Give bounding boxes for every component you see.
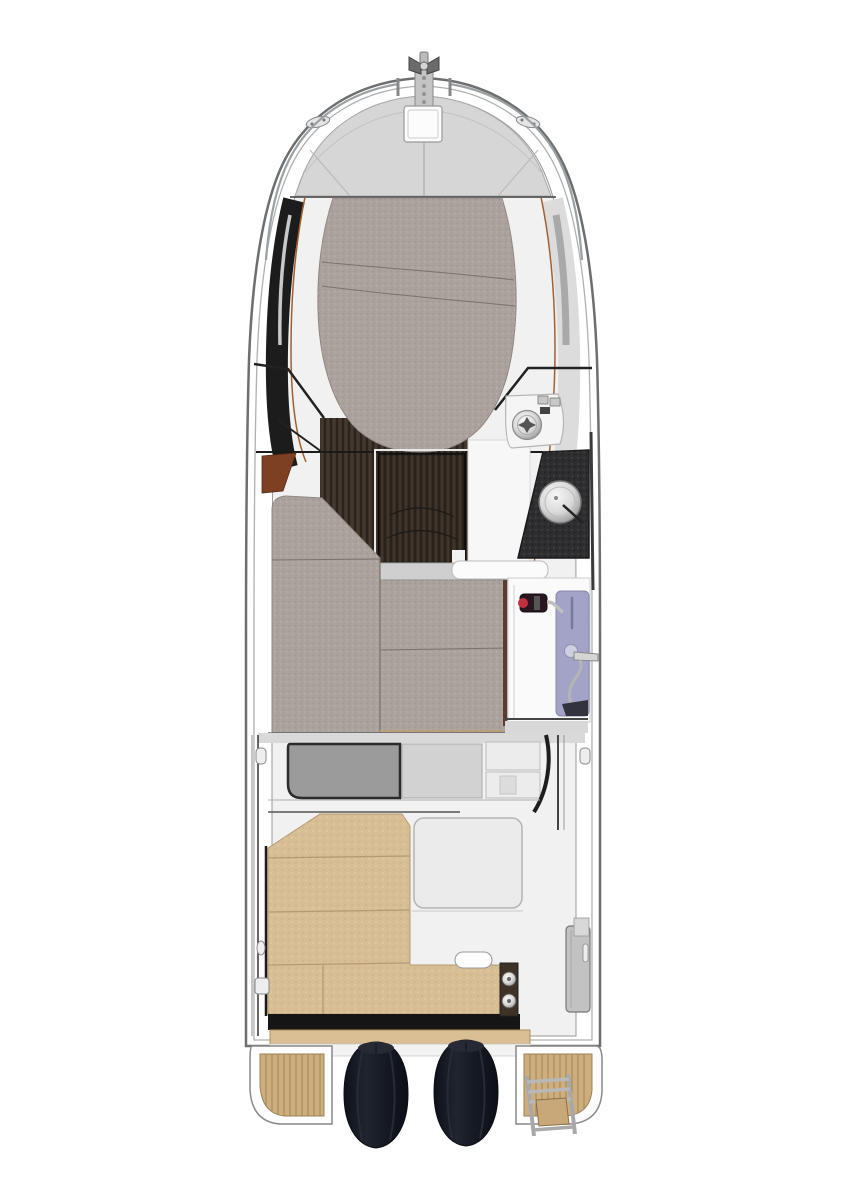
gunwale-fitting-left-3 <box>255 978 269 994</box>
throttle-lever <box>540 407 550 414</box>
transom-teak-step <box>270 1030 530 1044</box>
head-compartment <box>503 578 598 733</box>
head-trim-left <box>503 580 507 726</box>
anchor-locker-hatch <box>404 106 442 142</box>
boat-deck-plan <box>0 0 848 1200</box>
galley-floor <box>468 440 530 580</box>
gunwale-fitting-left-1 <box>256 748 266 764</box>
gunwale-fitting-left-2 <box>257 941 265 955</box>
entry-step-1 <box>486 742 540 770</box>
cockpit-floor-hatch <box>414 818 522 908</box>
ladder-rung-bottom <box>533 1127 573 1130</box>
white-shelf <box>452 561 548 579</box>
pump-band <box>534 596 540 610</box>
chain-link <box>422 84 426 88</box>
latch-pin <box>507 977 511 981</box>
instrument-panel-2 <box>550 398 560 406</box>
pump-red-cap <box>518 598 528 608</box>
coach-side-edge-right <box>591 432 593 590</box>
chain-link <box>422 100 426 104</box>
sink-drain <box>554 496 558 500</box>
bow-cross-left-wing <box>409 57 421 74</box>
aft-panel-light <box>402 744 482 798</box>
side-latch-right <box>583 944 588 962</box>
settee-right-texture <box>380 580 508 733</box>
latch-pin <box>507 999 511 1003</box>
companionway <box>375 450 469 580</box>
chain-link <box>422 92 426 96</box>
door-handle <box>574 652 598 661</box>
bow-sunpad <box>318 198 516 452</box>
instrument-panel-1 <box>538 396 548 404</box>
entry-step-inner <box>500 776 516 794</box>
helm-station <box>506 394 564 448</box>
faucet-base <box>582 523 587 528</box>
step-fender <box>455 952 492 968</box>
bench-base-shadow <box>268 1014 520 1030</box>
cleat-hole <box>323 119 326 122</box>
bow-cross-right-wing <box>427 57 439 74</box>
aft-locker <box>566 926 590 1012</box>
head-step-shadow <box>505 721 588 733</box>
cleat-hole <box>521 119 524 122</box>
bow-roller <box>420 62 428 70</box>
ladder-teak-pad <box>536 1098 569 1126</box>
aft-skylight <box>288 744 400 798</box>
side-step-right <box>574 918 589 936</box>
chain-link <box>422 76 426 80</box>
gunwale-fitting-right-1 <box>580 748 590 764</box>
sunpad-texture <box>318 198 516 452</box>
stern <box>250 1030 602 1148</box>
